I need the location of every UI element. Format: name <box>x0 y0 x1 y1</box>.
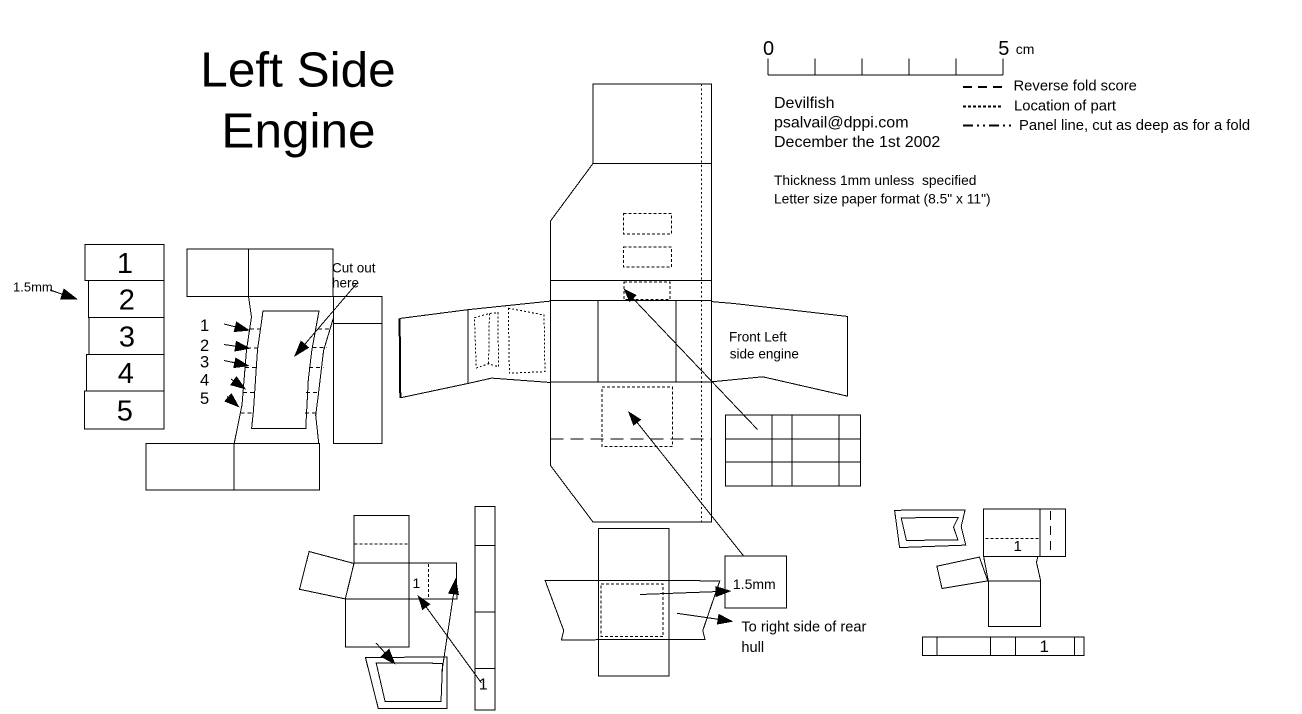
svg-text:5: 5 <box>200 390 209 408</box>
svg-text:4: 4 <box>200 372 209 390</box>
svg-text:1.5mm: 1.5mm <box>733 576 776 592</box>
svg-text:psalvail@dppi.com: psalvail@dppi.com <box>774 115 909 132</box>
svg-text:Left Side: Left Side <box>200 43 395 98</box>
svg-text:Devilfish: Devilfish <box>774 95 834 112</box>
svg-text:hull: hull <box>741 640 764 656</box>
svg-text:Panel line, cut as deep as for: Panel line, cut as deep as for a fold <box>1019 118 1250 134</box>
svg-text:1: 1 <box>1014 538 1022 555</box>
svg-text:Letter size paper format (8.5": Letter size paper format (8.5" x 11") <box>774 192 991 207</box>
svg-text:Thickness 1mm unless specifie: Thickness 1mm unless specified <box>774 173 976 188</box>
svg-text:side engine: side engine <box>730 346 799 361</box>
svg-text:3: 3 <box>119 321 135 353</box>
svg-text:Location of part: Location of part <box>1014 99 1116 115</box>
svg-text:2: 2 <box>119 285 135 317</box>
svg-text:3: 3 <box>200 354 209 372</box>
svg-text:0: 0 <box>763 38 774 60</box>
svg-text:cm: cm <box>1016 41 1035 57</box>
svg-text:1: 1 <box>117 248 133 280</box>
svg-text:1: 1 <box>413 575 421 591</box>
svg-text:5: 5 <box>117 396 133 428</box>
svg-text:1: 1 <box>200 317 209 335</box>
svg-text:1: 1 <box>479 677 488 694</box>
svg-text:4: 4 <box>118 358 134 390</box>
svg-text:here: here <box>332 275 359 290</box>
svg-text:1: 1 <box>1040 637 1049 656</box>
svg-text:Engine: Engine <box>221 104 375 159</box>
svg-text:December the 1st 2002: December the 1st 2002 <box>774 134 940 151</box>
svg-text:Reverse fold score: Reverse fold score <box>1014 79 1137 95</box>
svg-text:5: 5 <box>998 38 1009 60</box>
svg-text:2: 2 <box>200 337 209 355</box>
svg-text:Cut out: Cut out <box>332 261 376 276</box>
svg-text:1.5mm: 1.5mm <box>13 279 53 294</box>
svg-text:To right side of rear: To right side of rear <box>741 620 866 636</box>
svg-text:Front Left: Front Left <box>729 329 787 344</box>
